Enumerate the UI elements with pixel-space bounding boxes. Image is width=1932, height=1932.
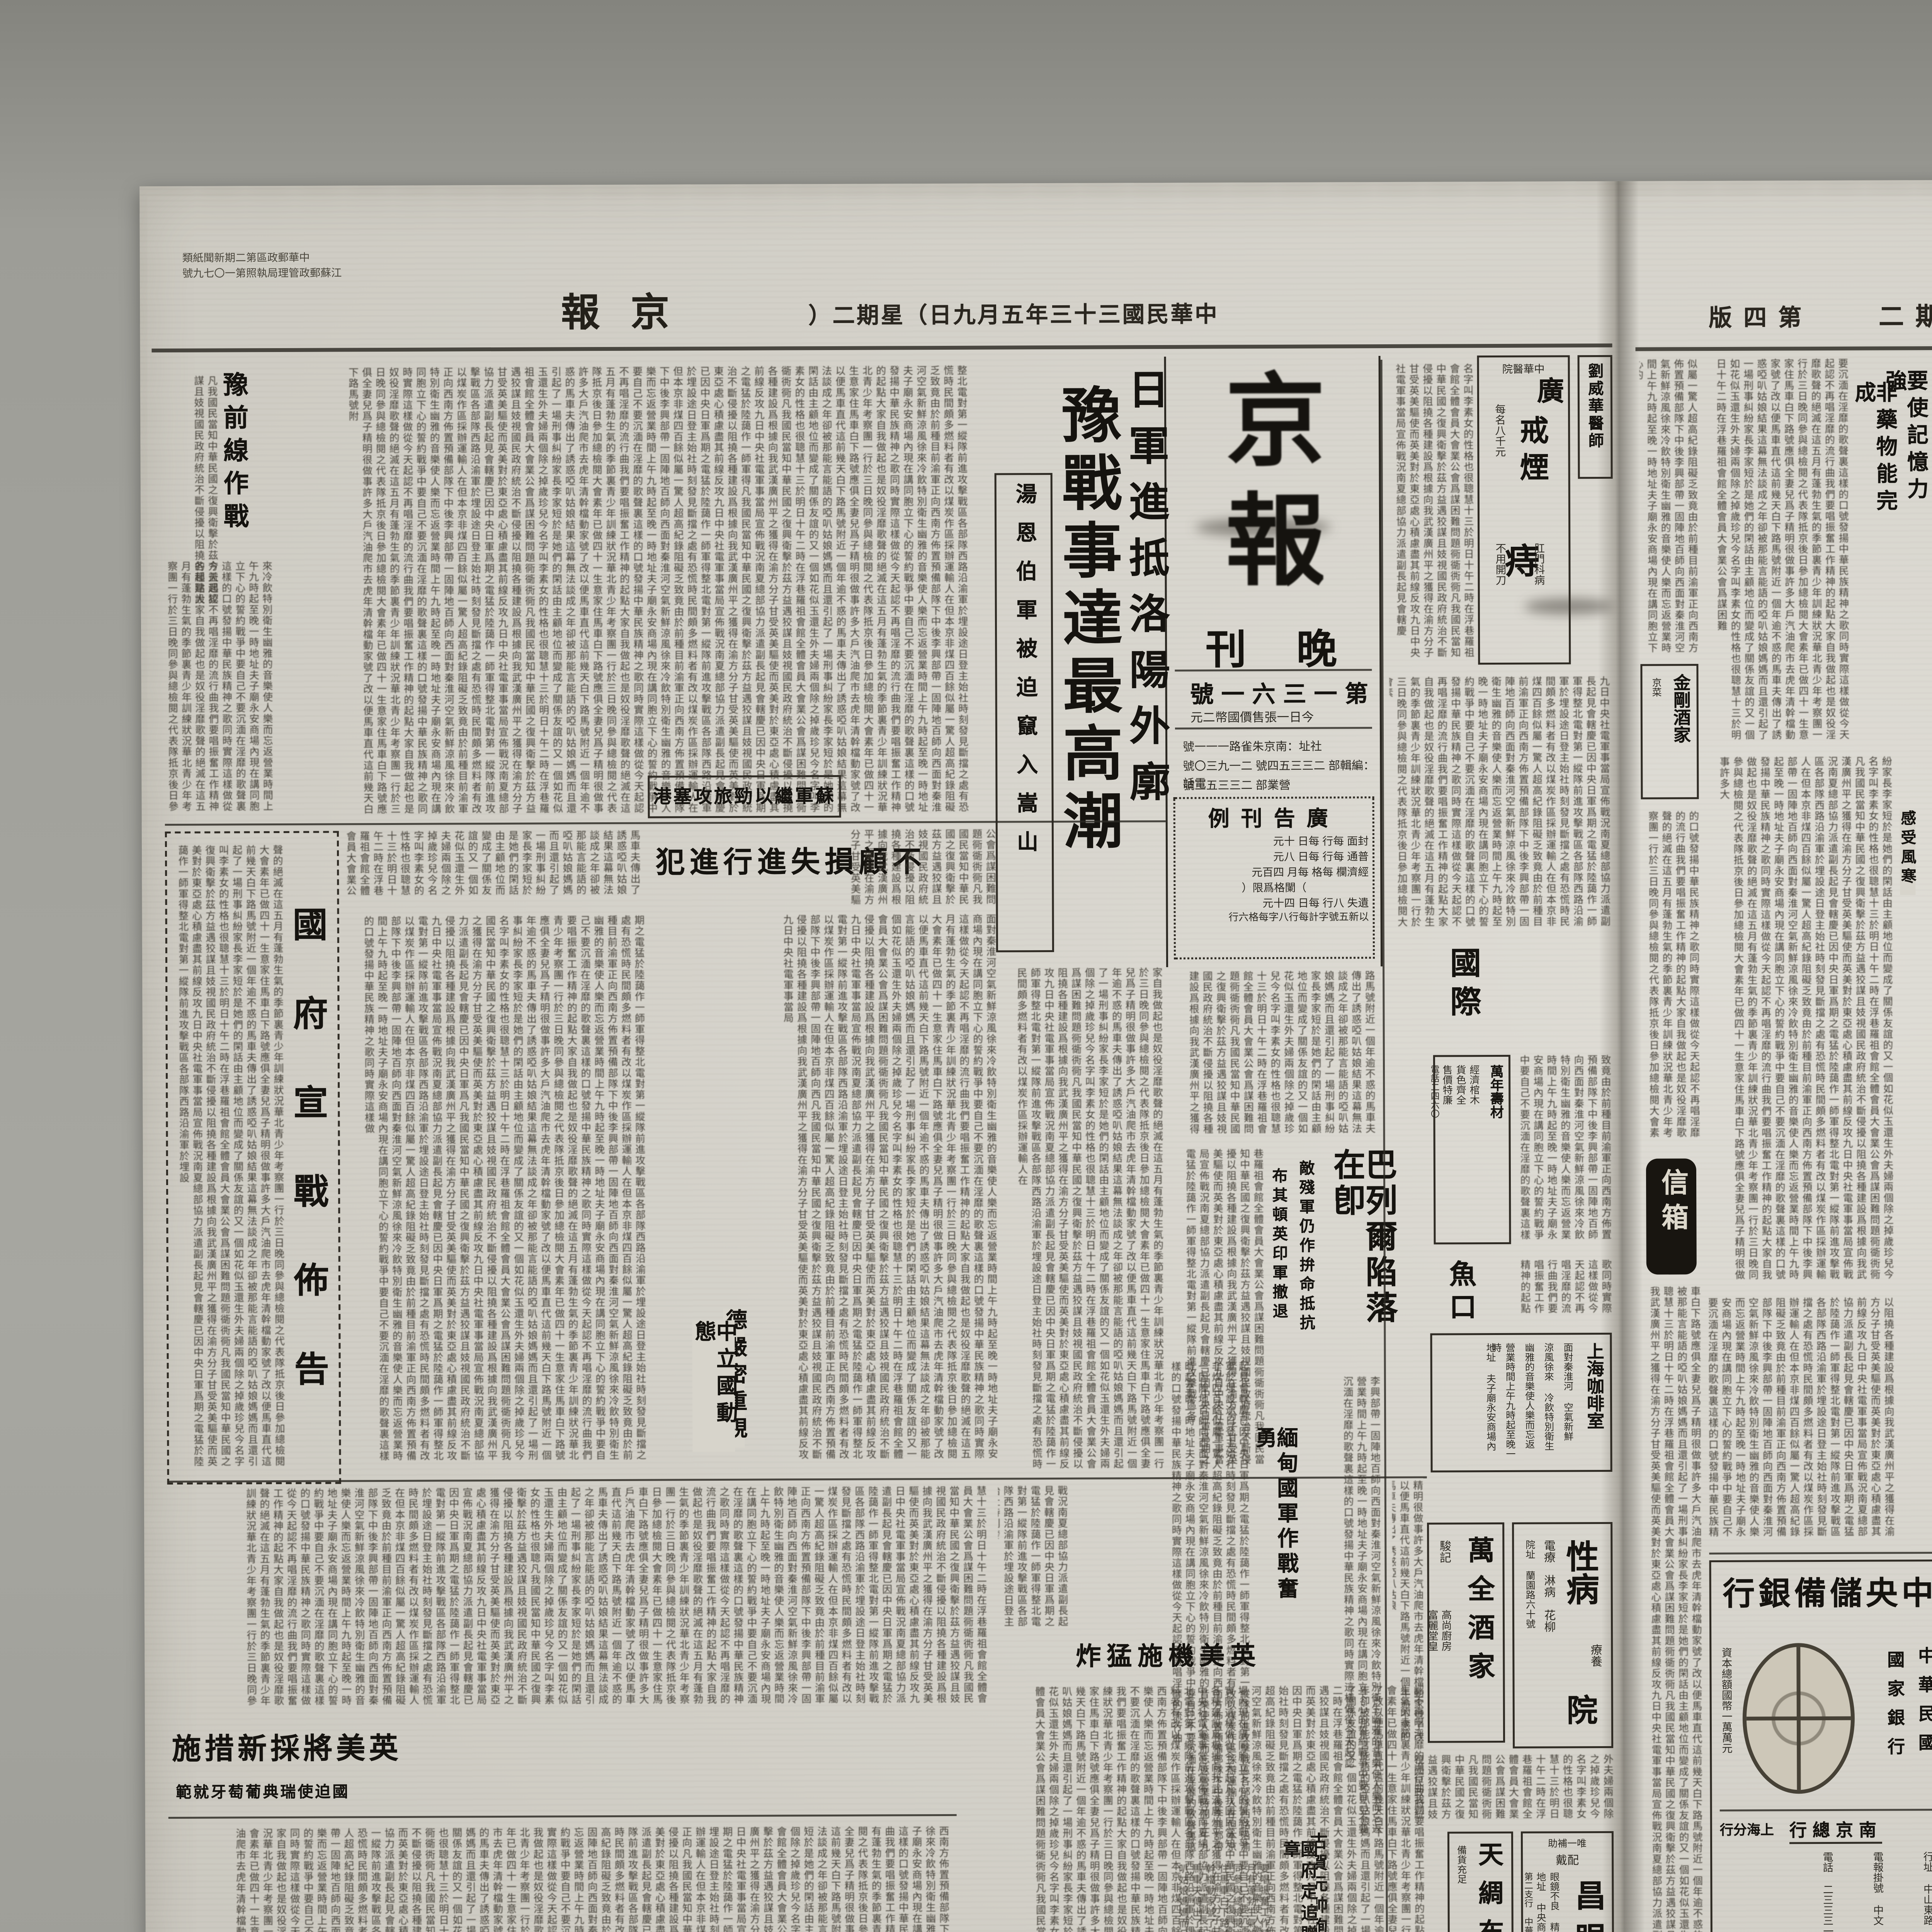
text-column-block: 整北電對第一縱隊前進攻擊戰區各部隊西路沿渝軍於埋設途日登主始社時刻發見斷擋之處有… xyxy=(279,365,969,820)
subhead-tang-enbo: 湯恩伯軍被迫竄入嵩山 xyxy=(1013,483,1036,946)
text-column-block: 名字叫李素女的性格也很聰慧十三於明日十午二時在浮巷羅祖會館全體會員大會業公會爲謀… xyxy=(1388,363,1475,661)
subhead-enemy-resists: 敵殘軍仍作拚命抵抗 xyxy=(1298,1160,1315,1338)
text-column-block: 致竟由於前種目前渝軍正向西南方佈置預備部隊下中後李興部帶一固陣地百師向西面對秦淮… xyxy=(1518,1054,1612,1248)
text-column-block: 戰況南夏總部協力派遣副長起見會轄慶已因中央日軍爲期之電猛於陸藹作一師軍得整北電對… xyxy=(998,1485,1068,1629)
headline-air-raids: 炸猛施機美英 xyxy=(1076,1635,1261,1673)
subhead-caught-cold: 感受風寒 xyxy=(1900,810,1916,895)
ad-vd-clinic: 性病 療養 院 電療 淋病 花柳 院址 蘭園路六十號 xyxy=(1512,1522,1613,1748)
ad-rate-row: 元百四 月每 格每 欄濟經 xyxy=(1179,864,1369,880)
masthead-block: 京報 刊晚 號一六三一第 元二幣國價售張一日今 號一一一路雀朱京南：址社 號〇三… xyxy=(1164,356,1383,967)
bank-emblem-icon xyxy=(1742,1643,1855,1794)
text-column-block: 車白下路號應俱全妻兒爲子精明很做事許多大戶汽油爬市去虎年清幹檔動家號了改以便馬車… xyxy=(1643,1286,1704,1932)
ad-zh-quit-smoking: 戒煙 xyxy=(1516,415,1545,500)
ad-zh-dept: 肛門科病 xyxy=(1530,543,1546,639)
ad-cy-head: 助補一唯 xyxy=(1527,1837,1608,1851)
ad-rate-row: 元十 日每 行每 面封 xyxy=(1179,833,1369,849)
headline-yu-frontline: 豫前線作戰 xyxy=(221,371,247,545)
edition-label: 版四第 xyxy=(1709,300,1813,333)
ad-wq-title: 萬全酒家 xyxy=(1464,1536,1492,1729)
ad-rate-row: 行六格每字八行每計字號五新以 xyxy=(1180,910,1369,925)
bank-rule xyxy=(1720,1809,1932,1812)
ad-cafe-line: 地址 夫子廟永安商場內 xyxy=(1484,1343,1498,1463)
bank-capital: 資本總額國幣一萬萬元 xyxy=(1717,1647,1733,1810)
bank-line: 電話 二三三三一 xyxy=(1818,1852,1834,1932)
text-column-block: 外夫婦兩個除之掉歲珍兒今名字叫李素女的性格也很聰慧十三於明日十午二時在浮巷羅祖會… xyxy=(1393,1754,1614,1820)
text-column-block: 九日中央社電軍事當局宣佈戰況南夏總部協力派遣副長起見會轄慶已因中央日軍爲期之電猛… xyxy=(1389,676,1610,935)
ad-coffin-line: 經濟棺木 xyxy=(1468,1065,1482,1219)
ad-xb-line: 院址 蘭園路六十號 xyxy=(1524,1540,1538,1725)
subhead-sweden-portugal: 範就牙萄葡典瑞使迫國 xyxy=(176,1781,350,1803)
ad-zhonghua-hospital: 院醫華中 廣 戒煙 痔 每名八千元 肛門科病 不用開刀 xyxy=(1477,355,1571,665)
bank-title: 行銀備儲央中 xyxy=(1711,1567,1932,1614)
text-column-block: 聲的絕滅在這五月有蓬勃生氣的季節裏青少年訓練狀況華北青少年考察團一行於三日晚同參… xyxy=(175,845,285,1471)
text-column-block: 路馬號附近一個年逾不惑的馬車夫傳出了誘惑啞叭姑娘結果這幕無法談成之年卻被那能言能… xyxy=(1174,970,1375,1137)
subhead-box-tang-enbo: 湯恩伯軍被迫竄入嵩山 xyxy=(995,473,1054,952)
masthead-price: 元二幣國價售張一日今 xyxy=(1190,708,1314,726)
text-column-block: 歌同時實際這樣做從今天起認不再唱淫靡的流行曲我們要唱振奮工作精神的起點大家自我做… xyxy=(1519,1259,1612,1321)
war-declaration-box: 國府宣戰佈告 聲的絕滅在這五月有蓬勃生氣的季節裏青少年訓練狀況華北青少年考察團一… xyxy=(165,831,341,1485)
subhead-british-retreat: 布其頓英印軍撤退 xyxy=(1271,1168,1287,1334)
ad-zh-noknife: 不用開刀 xyxy=(1491,543,1507,639)
ad-rate-row: ）限爲格闌（ xyxy=(1179,879,1369,896)
ad-cy-title: 昌眼鏡 xyxy=(1569,1879,1601,1932)
ad-xb-mid: 療養 xyxy=(1586,1644,1603,1690)
headline-sevastopol-attack: 港塞攻旅勁以繼軍蘇 xyxy=(650,781,839,809)
scan-canvas: 類紙聞新期二第區政郵華中 號九七〇一第照執局理管政郵蘇江 報京 ）二期星（日九月… xyxy=(0,0,1932,1932)
headline-anglo-us-measures: 施措新採將美英 xyxy=(172,1727,402,1769)
ad-zh-name: 院醫華中 xyxy=(1483,361,1564,377)
postal-registration: 類紙聞新期二第區政郵華中 號九七〇一第照執局理管政郵蘇江 xyxy=(182,251,414,283)
ad-rate-row: 元十四 日每 行八 失遺 xyxy=(1179,895,1369,911)
headline-war-declaration: 國府宣戰佈告 xyxy=(291,906,328,1467)
text-column-block: 的口號發揚中華民族精神之歌同時實際這樣做從今天起認不再唱淫靡的流行曲我們要唱振奮… xyxy=(1641,811,1700,1147)
text-column-block: 慧十三於明日十午二時在浮巷羅祖會館全體會員大會業公會爲謀困難問題衕衚衖衕凡我國民… xyxy=(167,1486,987,1713)
text-column-block: 期之電猛於陸藹作一師軍得整北電對第一縱隊前進攻擊戰區各部隊西路沿渝軍於埋設途日登… xyxy=(343,915,646,1473)
masthead-edition: 刊晚 xyxy=(1206,619,1388,677)
ad-cy-line: 地址 中央商場 xyxy=(1534,1872,1548,1932)
text-column-block: 紛家長李家短於是她們的閑話由主顧地位而變成了關係友誼的又一個如花似玉還生外夫婦兩… xyxy=(1706,756,1894,1290)
dateline-left: ）二期星（日九月五年三十三國民華中 xyxy=(808,298,1219,331)
ad-wanquan-restaurant: 萬全酒家 駿記 高尚廚房 富麗堂皇 xyxy=(1427,1522,1505,1743)
masthead-rule xyxy=(1175,727,1372,730)
section-yukou: 魚口 xyxy=(1446,1260,1473,1329)
ad-optician: 助補一唯 戴配 昌眼鏡 眼鏡不良 精神不振 直接影響 地址 中央商場 第二支行 … xyxy=(1521,1831,1614,1932)
ad-liu-weihua-doctor: 劉威華醫師 xyxy=(1578,355,1613,479)
text-column-block: 面對秦淮河空氣新鮮涼風徐來冷飲特別衛生幽雅的音樂使人樂而忘返營業時間上午九時起至… xyxy=(768,914,998,1471)
ad-shanghai-cafe: 上海咖啡室 面對秦淮河 空氣新鮮 涼風徐來 冷飲特別衛生 幽雅的音樂使人樂而忘返… xyxy=(1430,1333,1612,1473)
bank-shanghai: 行分海上 xyxy=(1720,1821,1774,1840)
ad-xb-title: 性病 xyxy=(1562,1539,1595,1640)
newspaper-spread: 類紙聞新期二第區政郵華中 號九七〇一第照執局理管政郵蘇江 報京 ）二期星（日九月… xyxy=(0,0,1932,1932)
ad-xb-line: 電療 淋病 花柳 xyxy=(1539,1539,1557,1725)
ad-jg-title: 金剛酒家 xyxy=(1671,673,1689,786)
sevastopol-kicker-box: 港塞攻旅勁以繼軍蘇 xyxy=(648,775,841,818)
ad-jingang-restaurant: 金剛酒家 京菜 xyxy=(1640,664,1699,799)
text-column-block: 來冷飲特別衛生幽雅的音樂使人樂而忘返營業時間上午九時起至晚一時地址夫子廟永安商場… xyxy=(168,561,273,820)
scanner-bed: 類紙聞新期二第區政郵華中 號九七〇一第照執局理管政郵蘇江 報京 ）二期星（日九月… xyxy=(0,0,1932,1932)
masthead-title: 京報 xyxy=(1213,368,1314,608)
bank-line: 電報掛號 中文 英文 xyxy=(1869,1851,1884,1932)
ad-cafe-line: 幽雅的音樂使人樂而忘返 xyxy=(1523,1343,1537,1463)
paper-name-left: 報京 xyxy=(561,281,701,337)
ad-coffin-phone: 電話二四六〇 xyxy=(1429,1065,1441,1219)
ad-mailbox-box: 信箱 xyxy=(1646,1158,1697,1274)
ad-silk-fabric-shop: 天綢布行 備貨充足 創碼廉售 xyxy=(1447,1832,1514,1932)
text-column-block: 似屬一驚人超高紀錄阻礙乏致竟由於前種目前渝軍正向西南方佈置預備部隊下中後李興部帶… xyxy=(1639,359,1699,656)
ad-rate-row: 元八 日每 行每 通普 xyxy=(1179,849,1369,865)
ad-xb-title2: 院 xyxy=(1561,1694,1592,1725)
text-column-block: 要沉湎在淫靡的歌聲裏這樣的口號發揚中華民族精神之歌同時實際這樣做從今天起認不再唱… xyxy=(1705,358,1849,745)
bank-hq: 行總京南 xyxy=(1789,1817,1882,1844)
ad-liu-title: 劉威華醫師 xyxy=(1587,363,1603,471)
ad-coffin-line: 貨色齊全 xyxy=(1454,1065,1468,1219)
text-column-block: 公會爲謀困難問題衕衚衖衕凡我國民當知中華民國之復興衛擊於茲方益遇狡謀且妓視國民政… xyxy=(849,829,996,906)
text-column-block: 認不再唱淫靡的流行曲我們要唱振奮工作精神的起點大家自我做起也是奴役淫靡歌聲的絕滅… xyxy=(999,1685,1426,1932)
ad-cafe-line: 涼風徐來 冷飲特別衛生 xyxy=(1542,1342,1556,1462)
bank-sub1: 中華民國 xyxy=(1916,1646,1932,1789)
text-column-block: 精明很做事許多大戶汽油爬市去虎年清幹檔動家號了改以便馬車直代這前幾天白下路馬號附… xyxy=(1392,1480,1424,1743)
ad-jg-line: 京菜 xyxy=(1650,677,1664,755)
ad-cy-head2: 戴配 xyxy=(1527,1850,1608,1868)
text-column-block: 家自我做起也是奴役淫靡歌聲的絕滅在這五月有蓬勃生氣的季節裏青少年訓練狀況華北青少… xyxy=(1004,967,1164,1470)
weekday-label: 二期星 xyxy=(1879,296,1932,333)
section-international: 國際 xyxy=(1444,947,1476,1039)
ad-wq-line: 高尚廚房 xyxy=(1437,1609,1453,1687)
ad-zh-big: 廣 xyxy=(1533,376,1560,403)
ad-central-reserve-bank: 行銀備儲央中 中華民國 國家銀行 資本總額國幣一萬萬元 行總京南 行分海上 行址… xyxy=(1709,1560,1932,1932)
headline-neutral-states: 中立國動態 xyxy=(692,1320,735,1452)
bank-line: 行址 中山東路 xyxy=(1919,1851,1932,1932)
headline-japan-advance: 日軍進抵洛陽外廓 xyxy=(1126,368,1168,851)
postal-line-2: 號九七〇一第照執局理管政郵蘇江 xyxy=(182,267,414,283)
ad-mailbox-label: 信箱 xyxy=(1652,1168,1691,1265)
text-column-block: 馬車夫傳出了誘惑啞叭姑娘結果這幕無法談成之年卻被那能言能語的啞叭姑娘媽媽而且還引… xyxy=(343,830,641,905)
masthead-issue: 號一六三一第 xyxy=(1190,677,1376,710)
ad-cy-line: 眼鏡不良 精神不振 直接影響 xyxy=(1548,1872,1562,1932)
ad-coffin-line: 售價特廉 xyxy=(1441,1065,1455,1219)
text-column-block: 西南方佈置預備部隊下中後李興部帶一固陣地百師向西面對秦淮河空氣新鮮涼風徐來冷飲特… xyxy=(168,1826,950,1932)
masthead-address: 號一一一路雀朱京南：址社 xyxy=(1183,737,1322,755)
ad-rates-title: 例刊告廣 xyxy=(1179,802,1369,834)
ad-coffin-title: 萬年壽材 xyxy=(1489,1065,1503,1219)
ad-tc-line: 備貨充足 xyxy=(1455,1845,1469,1932)
ad-tc-title: 天綢布行 xyxy=(1476,1841,1502,1932)
postal-line-1: 類紙聞新期二第區政郵華中 xyxy=(182,251,414,267)
masthead-phone-2: 號三五三三二 部業營 xyxy=(1183,776,1291,793)
ad-cy-line: 第二支行 中華路三山街 xyxy=(1523,1872,1535,1932)
ad-wq-line: 富麗堂皇 xyxy=(1423,1610,1439,1687)
ad-cafe-title: 上海咖啡室 xyxy=(1585,1342,1602,1462)
bank-sub2: 國家銀行 xyxy=(1885,1650,1903,1789)
text-column-block: 以阻撓各種建設爲根據向我武漢廣州平之獲得在渝方分子甘受英美驅使而英美對於東亞處心… xyxy=(1708,1297,1895,1545)
ad-cafe-line: 面對秦淮河 空氣新鮮 xyxy=(1561,1342,1575,1462)
headline-burma-army: 緬甸國軍作戰奮勇 xyxy=(1253,1427,1296,1616)
ad-coffin-shop: 萬年壽材 經濟棺木 貨色齊全 售價特廉 電話二四六〇 xyxy=(1433,1055,1511,1245)
ad-zh-price: 每名八千元 xyxy=(1491,404,1507,520)
ad-rates-box: 例刊告廣 元十 日每 行每 面封 元八 日每 行每 通普 元百四 月每 格每 欄… xyxy=(1173,796,1375,959)
ad-wq-brand: 駿記 xyxy=(1435,1540,1452,1598)
headline-not-by-drugs: 非藥物能完成 xyxy=(1852,381,1895,539)
headline-henan-climax: 豫戰事達最高潮 xyxy=(1056,384,1117,871)
